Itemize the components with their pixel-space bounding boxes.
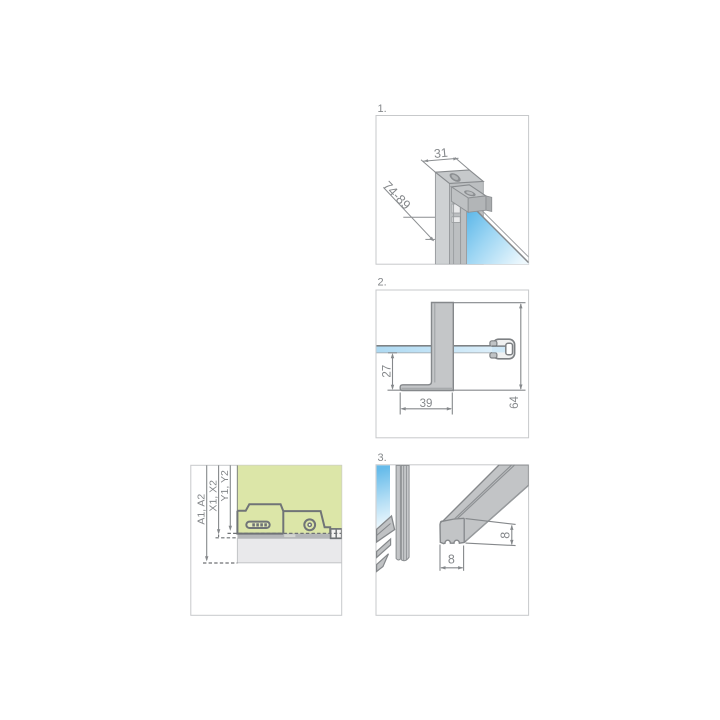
svg-text:1.: 1. xyxy=(378,103,387,115)
svg-text:64: 64 xyxy=(509,396,521,409)
svg-text:74-89: 74-89 xyxy=(380,178,414,212)
svg-text:2.: 2. xyxy=(378,277,387,289)
svg-text:8: 8 xyxy=(448,552,455,566)
svg-text:Y1, Y2: Y1, Y2 xyxy=(219,470,231,501)
svg-text:31: 31 xyxy=(433,146,448,161)
svg-text:3.: 3. xyxy=(378,452,387,464)
svg-text:8: 8 xyxy=(498,532,512,539)
svg-text:A1, A2: A1, A2 xyxy=(195,494,207,525)
svg-text:X1, X2: X1, X2 xyxy=(207,480,219,512)
svg-text:27: 27 xyxy=(382,365,394,378)
svg-text:39: 39 xyxy=(420,398,433,410)
